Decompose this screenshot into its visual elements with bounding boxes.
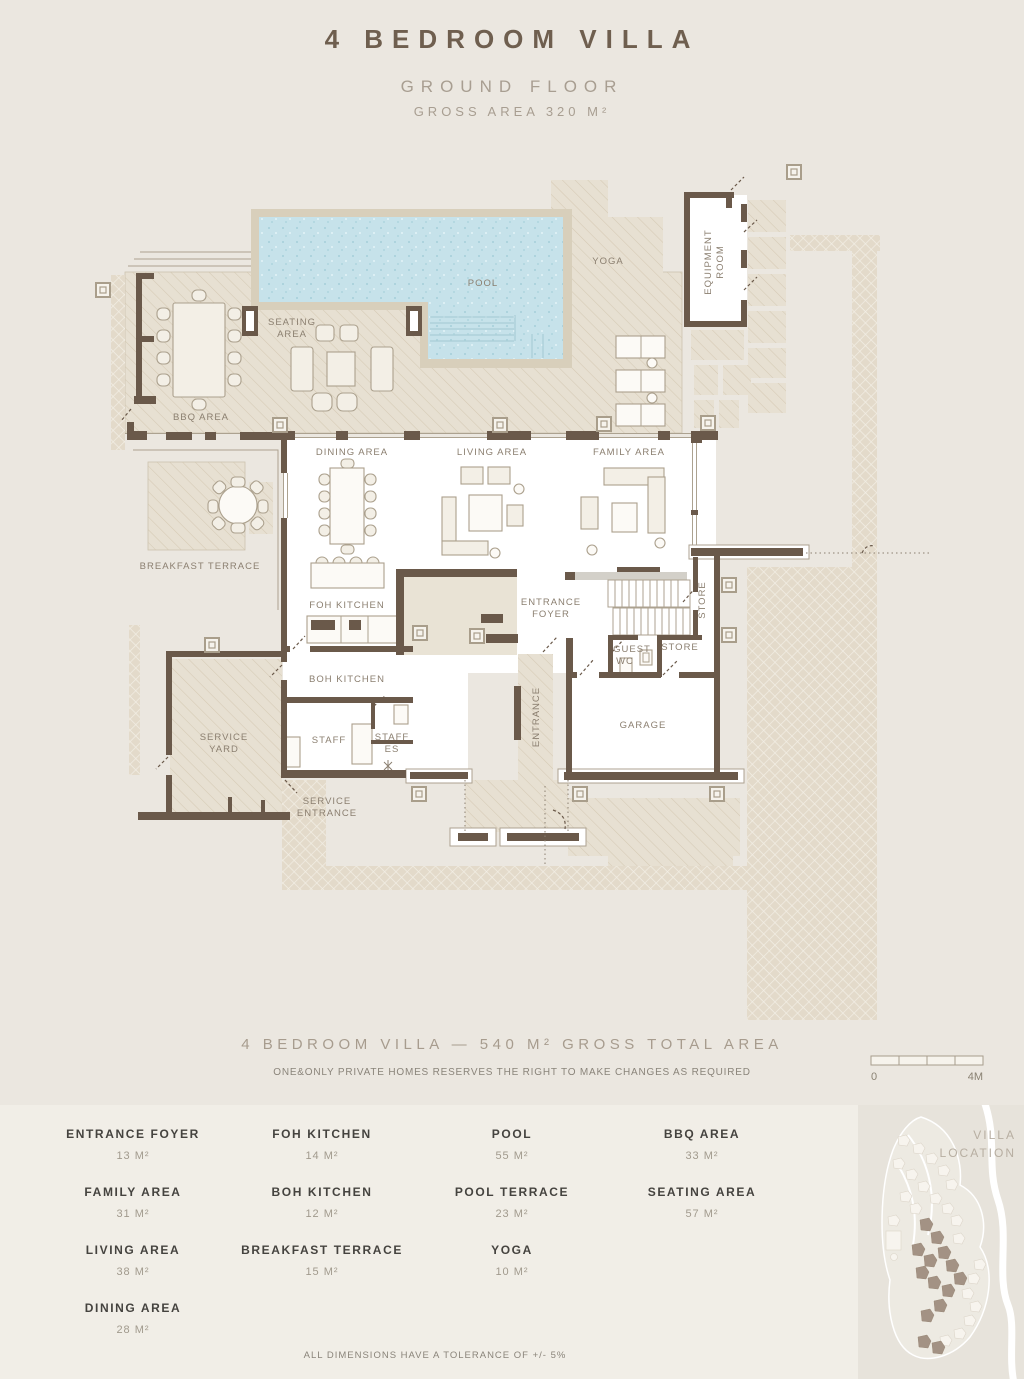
label-foh-kitchen: FOH KITCHEN [309,600,384,611]
label-yoga: YOGA [592,256,623,267]
label-staff-es-1: STAFF [375,732,409,743]
legend-column-1: ENTRANCE FOYER13 M² FAMILY AREA31 M² LIV… [33,1127,233,1359]
legend-item: FOH KITCHEN14 M² [222,1127,422,1185]
label-breakfast-terrace: BREAKFAST TERRACE [140,561,261,572]
breakfast-table [208,477,268,533]
legend-item: BOH KITCHEN12 M² [222,1185,422,1243]
legend-column-4: BBQ AREA33 M² SEATING AREA57 M² [602,1127,802,1243]
label-store-small: STORE [661,642,699,653]
label-garage: GARAGE [620,720,667,731]
label-service-yard-1: SERVICE [200,732,249,743]
label-entrance-foyer-2: FOYER [532,609,570,620]
legend-item: ENTRANCE FOYER13 M² [33,1127,233,1185]
label-guest-wc-2: WC [616,656,634,667]
legend-item: POOL TERRACE23 M² [412,1185,612,1243]
label-dining-area: DINING AREA [316,447,388,458]
label-boh-kitchen: BOH KITCHEN [309,674,385,685]
legend-item: LIVING AREA38 M² [33,1243,233,1301]
sun-loungers [616,336,665,426]
label-store-tall: STORE [697,581,708,619]
legend-column-3: POOL55 M² POOL TERRACE23 M² YOGA10 M² [412,1127,612,1301]
legend-item: FAMILY AREA31 M² [33,1185,233,1243]
legend-item: BBQ AREA33 M² [602,1127,802,1185]
label-equipment-room-2: ROOM [715,245,726,279]
label-living-area: LIVING AREA [457,447,527,458]
label-seating-area-1: SEATING [268,317,316,328]
tolerance-note: ALL DIMENSIONS HAVE A TOLERANCE OF +/- 5… [0,1350,870,1361]
map-label-line1: VILLA [973,1128,1016,1142]
label-service-entrance-2: ENTRANCE [297,808,357,819]
legend-item: BREAKFAST TERRACE15 M² [222,1243,422,1301]
label-seating-area-2: AREA [277,329,307,340]
scale-max: 4M [968,1071,983,1083]
floor-plan: .lbl{font-family:"Liberation Sans",sans-… [0,0,1024,1030]
label-equipment-room-1: EQUIPMENT [703,229,714,294]
label-bbq-area: BBQ AREA [173,412,229,423]
label-guest-wc-1: GUEST [613,644,651,655]
villa-location-map: VILLA LOCATION [858,1105,1024,1379]
label-pool: POOL [468,278,498,289]
label-service-entrance-1: SERVICE [303,796,352,807]
scale-zero: 0 [871,1071,877,1083]
label-family-area: FAMILY AREA [593,447,665,458]
label-entrance-foyer-1: ENTRANCE [521,597,581,608]
area-legend-panel: ENTRANCE FOYER13 M² FAMILY AREA31 M² LIV… [0,1105,1024,1379]
label-service-yard-2: YARD [209,744,239,755]
page: 4 BEDROOM VILLA GROUND FLOOR GROSS AREA … [0,0,1024,1379]
label-staff-es-2: ES [385,744,400,755]
map-label-line2: LOCATION [940,1146,1016,1160]
legend-item: POOL55 M² [412,1127,612,1185]
legend-column-2: FOH KITCHEN14 M² BOH KITCHEN12 M² BREAKF… [222,1127,422,1301]
legend-item: YOGA10 M² [412,1243,612,1301]
label-staff: STAFF [312,735,346,746]
legend-item: SEATING AREA57 M² [602,1185,802,1243]
scale-bar: 0 4M [870,1050,990,1084]
label-entrance-corridor: ENTRANCE [531,687,542,747]
